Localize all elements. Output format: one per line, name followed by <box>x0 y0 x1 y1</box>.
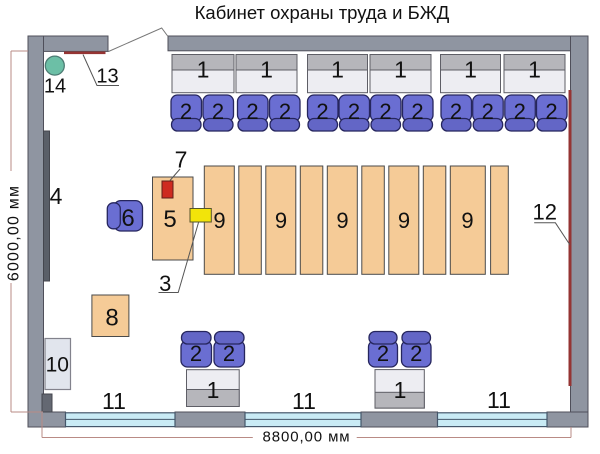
svg-text:8: 8 <box>105 305 118 332</box>
svg-text:3: 3 <box>159 271 171 296</box>
svg-text:9: 9 <box>398 208 410 233</box>
svg-text:1: 1 <box>528 56 541 82</box>
svg-text:11: 11 <box>102 388 126 414</box>
svg-text:2: 2 <box>223 341 235 366</box>
svg-text:2: 2 <box>545 99 557 124</box>
svg-text:1: 1 <box>331 56 344 82</box>
svg-text:2: 2 <box>279 99 291 124</box>
svg-text:2: 2 <box>482 99 494 124</box>
svg-text:1: 1 <box>197 56 210 82</box>
svg-text:2: 2 <box>410 341 422 366</box>
svg-text:2: 2 <box>411 99 423 124</box>
svg-text:2: 2 <box>190 341 202 366</box>
svg-text:9: 9 <box>336 208 348 233</box>
svg-text:13: 13 <box>96 66 118 88</box>
svg-text:2: 2 <box>316 99 328 124</box>
svg-text:1: 1 <box>207 377 220 403</box>
svg-text:5: 5 <box>163 206 176 233</box>
svg-text:9: 9 <box>461 208 473 233</box>
svg-text:2: 2 <box>180 99 192 124</box>
svg-text:11: 11 <box>292 388 316 414</box>
svg-text:11: 11 <box>487 387 511 413</box>
svg-text:1: 1 <box>394 56 407 82</box>
svg-text:1: 1 <box>260 56 273 82</box>
svg-text:6000,00 мм: 6000,00 мм <box>6 185 23 281</box>
svg-text:2: 2 <box>246 99 258 124</box>
svg-text:2: 2 <box>450 99 462 124</box>
svg-text:1: 1 <box>394 377 407 403</box>
svg-text:10: 10 <box>46 354 69 377</box>
svg-text:2: 2 <box>212 99 224 124</box>
svg-text:14: 14 <box>44 76 66 98</box>
svg-text:7: 7 <box>175 147 188 173</box>
svg-text:2: 2 <box>379 99 391 124</box>
svg-text:9: 9 <box>213 208 225 233</box>
svg-text:4: 4 <box>50 183 63 209</box>
svg-text:2: 2 <box>514 99 526 124</box>
svg-text:9: 9 <box>275 208 287 233</box>
svg-text:6: 6 <box>121 205 134 232</box>
svg-text:Кабинет охраны труда и БЖД: Кабинет охраны труда и БЖД <box>195 2 450 23</box>
svg-text:2: 2 <box>377 341 389 366</box>
svg-text:8800,00 мм: 8800,00 мм <box>262 429 350 446</box>
svg-text:1: 1 <box>464 56 477 82</box>
svg-text:12: 12 <box>533 200 557 225</box>
svg-text:2: 2 <box>348 99 360 124</box>
